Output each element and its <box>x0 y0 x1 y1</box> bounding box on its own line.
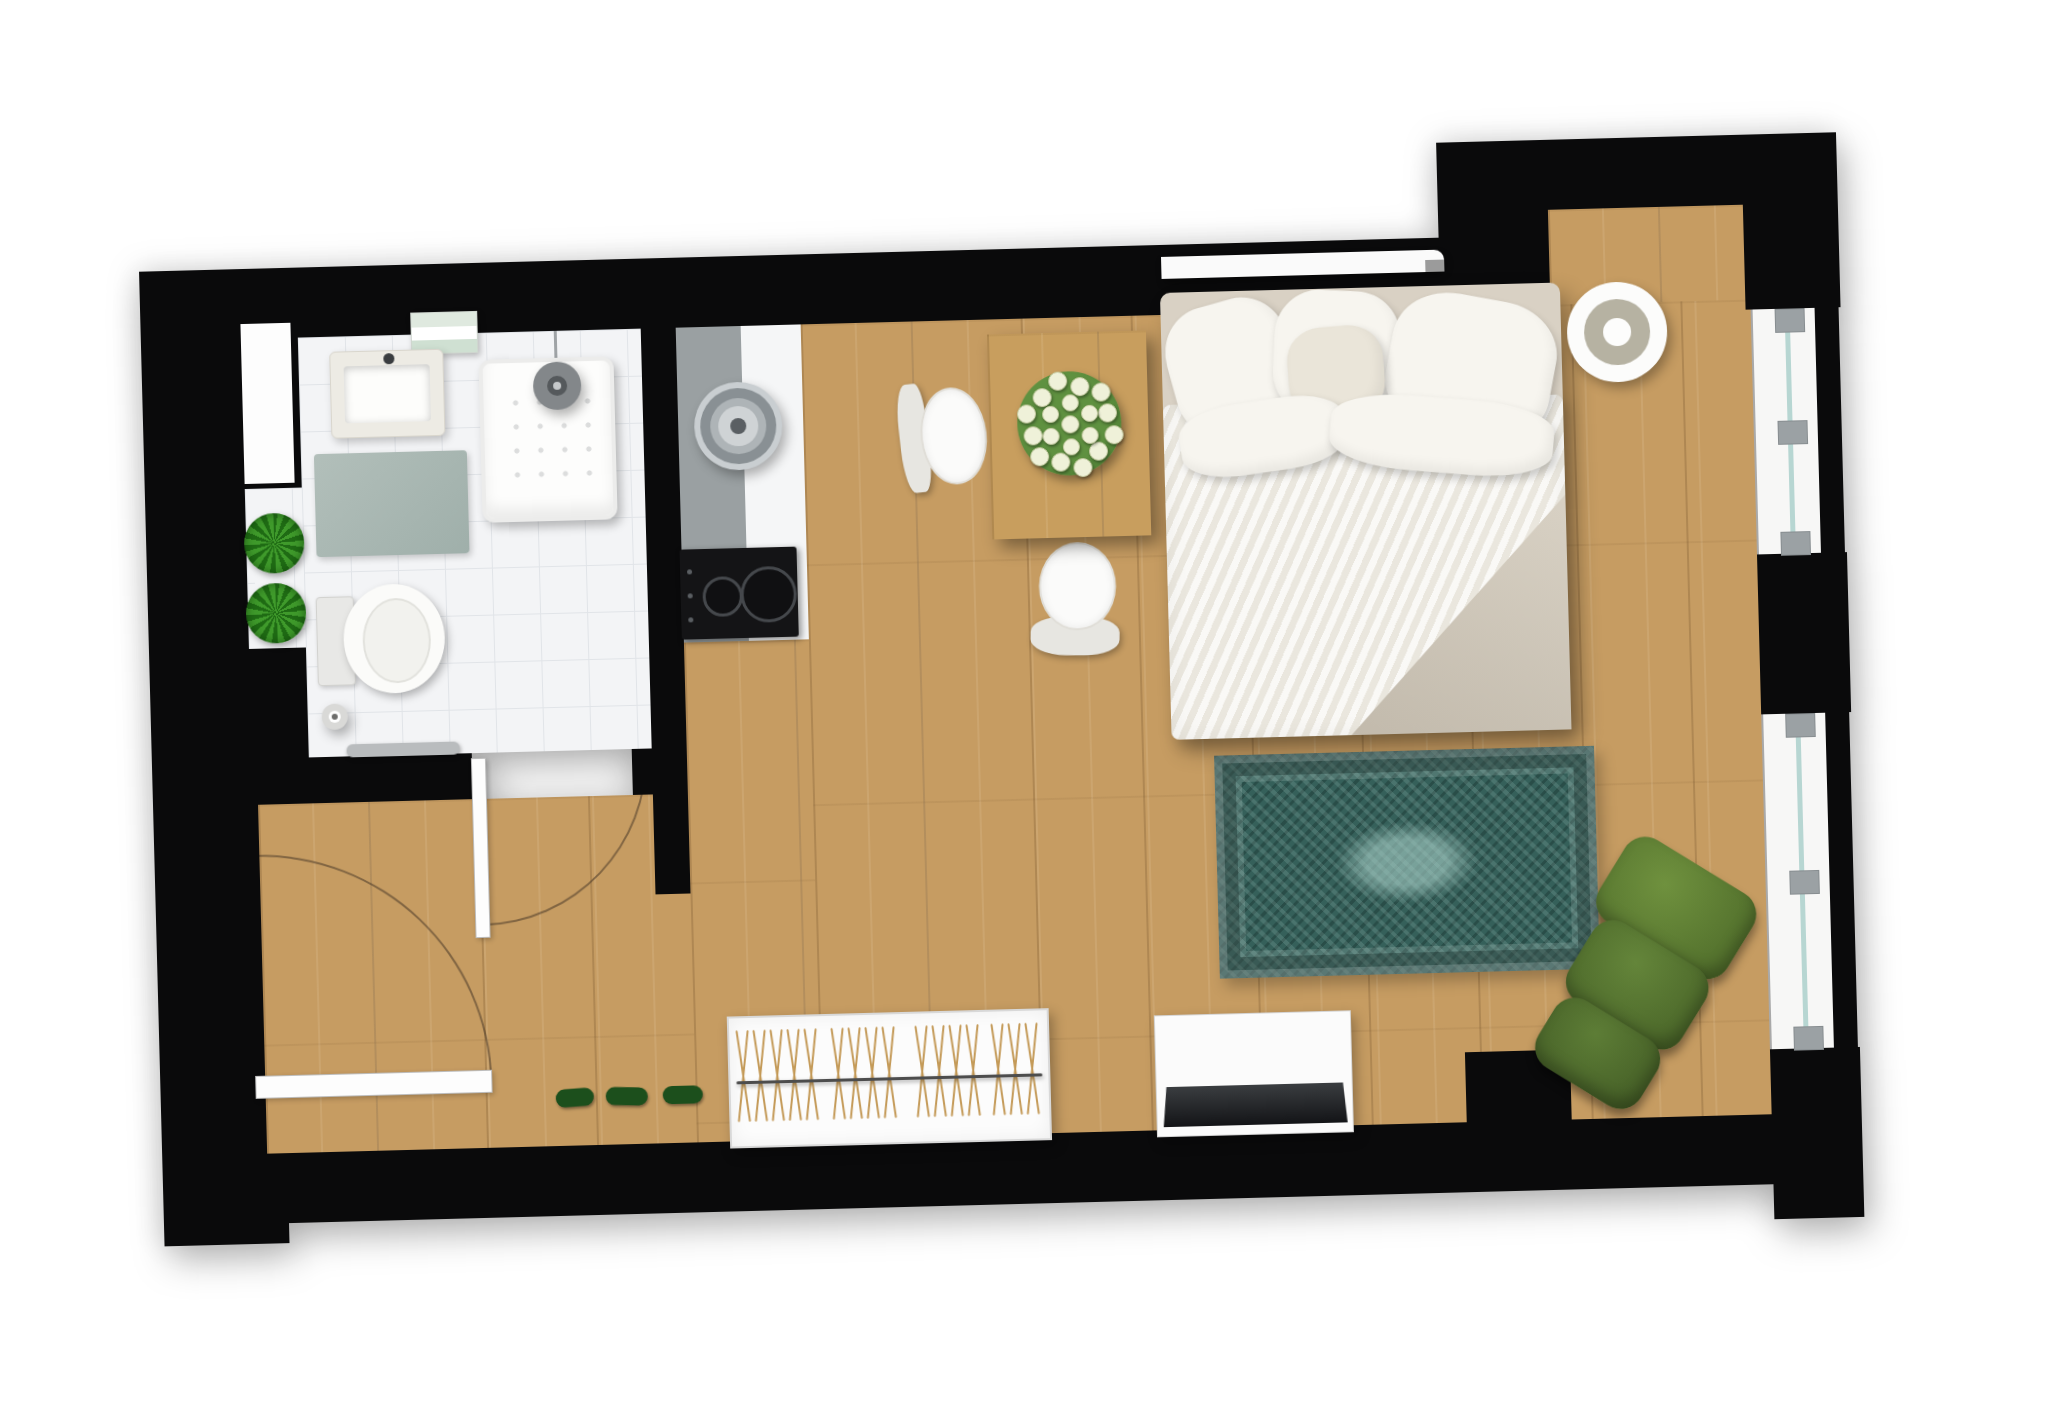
flower-bouquet <box>1003 357 1136 490</box>
bath-mat <box>314 450 470 557</box>
rose-bud <box>1081 426 1098 443</box>
kitchen-sink <box>693 381 783 471</box>
wall-topright-top <box>1546 132 1838 210</box>
window-frame-tab <box>1785 713 1816 738</box>
shoe-3 <box>663 1085 703 1104</box>
clothes-hanger <box>1009 1023 1021 1115</box>
clothes-hanger <box>849 1027 861 1119</box>
wall-left-lower <box>152 759 269 1227</box>
window-frame-tab <box>1789 870 1820 895</box>
cooktop <box>679 547 798 640</box>
clothes-hanger <box>1026 1022 1038 1114</box>
wall-right-mid <box>1757 552 1851 714</box>
window-frame-tab <box>1793 1026 1824 1051</box>
clothes-hanger <box>805 1028 817 1120</box>
clothes-hanger <box>916 1025 928 1117</box>
shelf-bracket <box>1425 260 1444 272</box>
clothes-hanger <box>832 1028 844 1120</box>
rose-bud <box>1070 377 1089 396</box>
dining-chair-left <box>893 369 992 501</box>
sink-faucet <box>383 353 394 364</box>
rose-bud <box>1023 426 1042 445</box>
cooktop-control-dot <box>688 593 693 598</box>
window-top <box>1753 307 1845 554</box>
rose-bud <box>1032 388 1051 407</box>
left-wall-window <box>240 323 294 484</box>
window-frame-tab <box>1775 308 1806 333</box>
clothes-hanger <box>950 1024 962 1116</box>
rose-bud <box>1104 425 1123 444</box>
clothes-hanger <box>737 1030 749 1122</box>
clothes-hanger <box>788 1029 800 1121</box>
towel-shelf <box>410 311 478 355</box>
cooktop-control-dot <box>687 569 692 574</box>
bathroom-sink <box>329 349 445 439</box>
rose-bud <box>1080 404 1097 421</box>
rose-bud <box>1062 438 1079 455</box>
clothes-hanger <box>883 1026 895 1118</box>
window-frame-tab <box>1780 531 1811 556</box>
sink-basin <box>344 364 431 424</box>
tv <box>1163 1082 1348 1127</box>
toilet <box>315 583 446 695</box>
dining-chair-bottom <box>1024 537 1126 661</box>
clothes-hanger <box>933 1025 945 1117</box>
clothes-hanger <box>967 1024 979 1116</box>
wall-left-mid <box>149 647 309 761</box>
clothes-hanger <box>754 1030 766 1122</box>
rose-bud <box>1073 458 1092 477</box>
rose-bud <box>1061 394 1078 411</box>
window-outer-wall <box>1815 307 1845 553</box>
burner-small <box>702 576 743 617</box>
wall-topright-right <box>1743 202 1841 309</box>
clothes-hanger <box>771 1029 783 1121</box>
wall-bath-bottom-left <box>257 753 473 805</box>
shower-head <box>533 361 582 410</box>
window-outer-wall <box>1825 712 1858 1048</box>
shoe-1 <box>555 1087 594 1108</box>
wall-bath-bottom-right <box>632 748 653 795</box>
window-frame-tab <box>1777 420 1808 445</box>
clothes-hanger <box>992 1023 1004 1115</box>
toilet-paper-holder <box>321 703 348 730</box>
clothes-hanger <box>866 1027 878 1119</box>
floor-plan <box>136 127 1874 1271</box>
dining-chair-bottom-seat <box>1039 542 1116 630</box>
window-bottom <box>1763 712 1858 1049</box>
shoe-2 <box>606 1087 648 1105</box>
cooktop-control-dot <box>688 617 693 622</box>
wardrobe <box>727 1008 1052 1148</box>
burner-large <box>740 566 797 623</box>
decor-bowl <box>1566 281 1669 384</box>
